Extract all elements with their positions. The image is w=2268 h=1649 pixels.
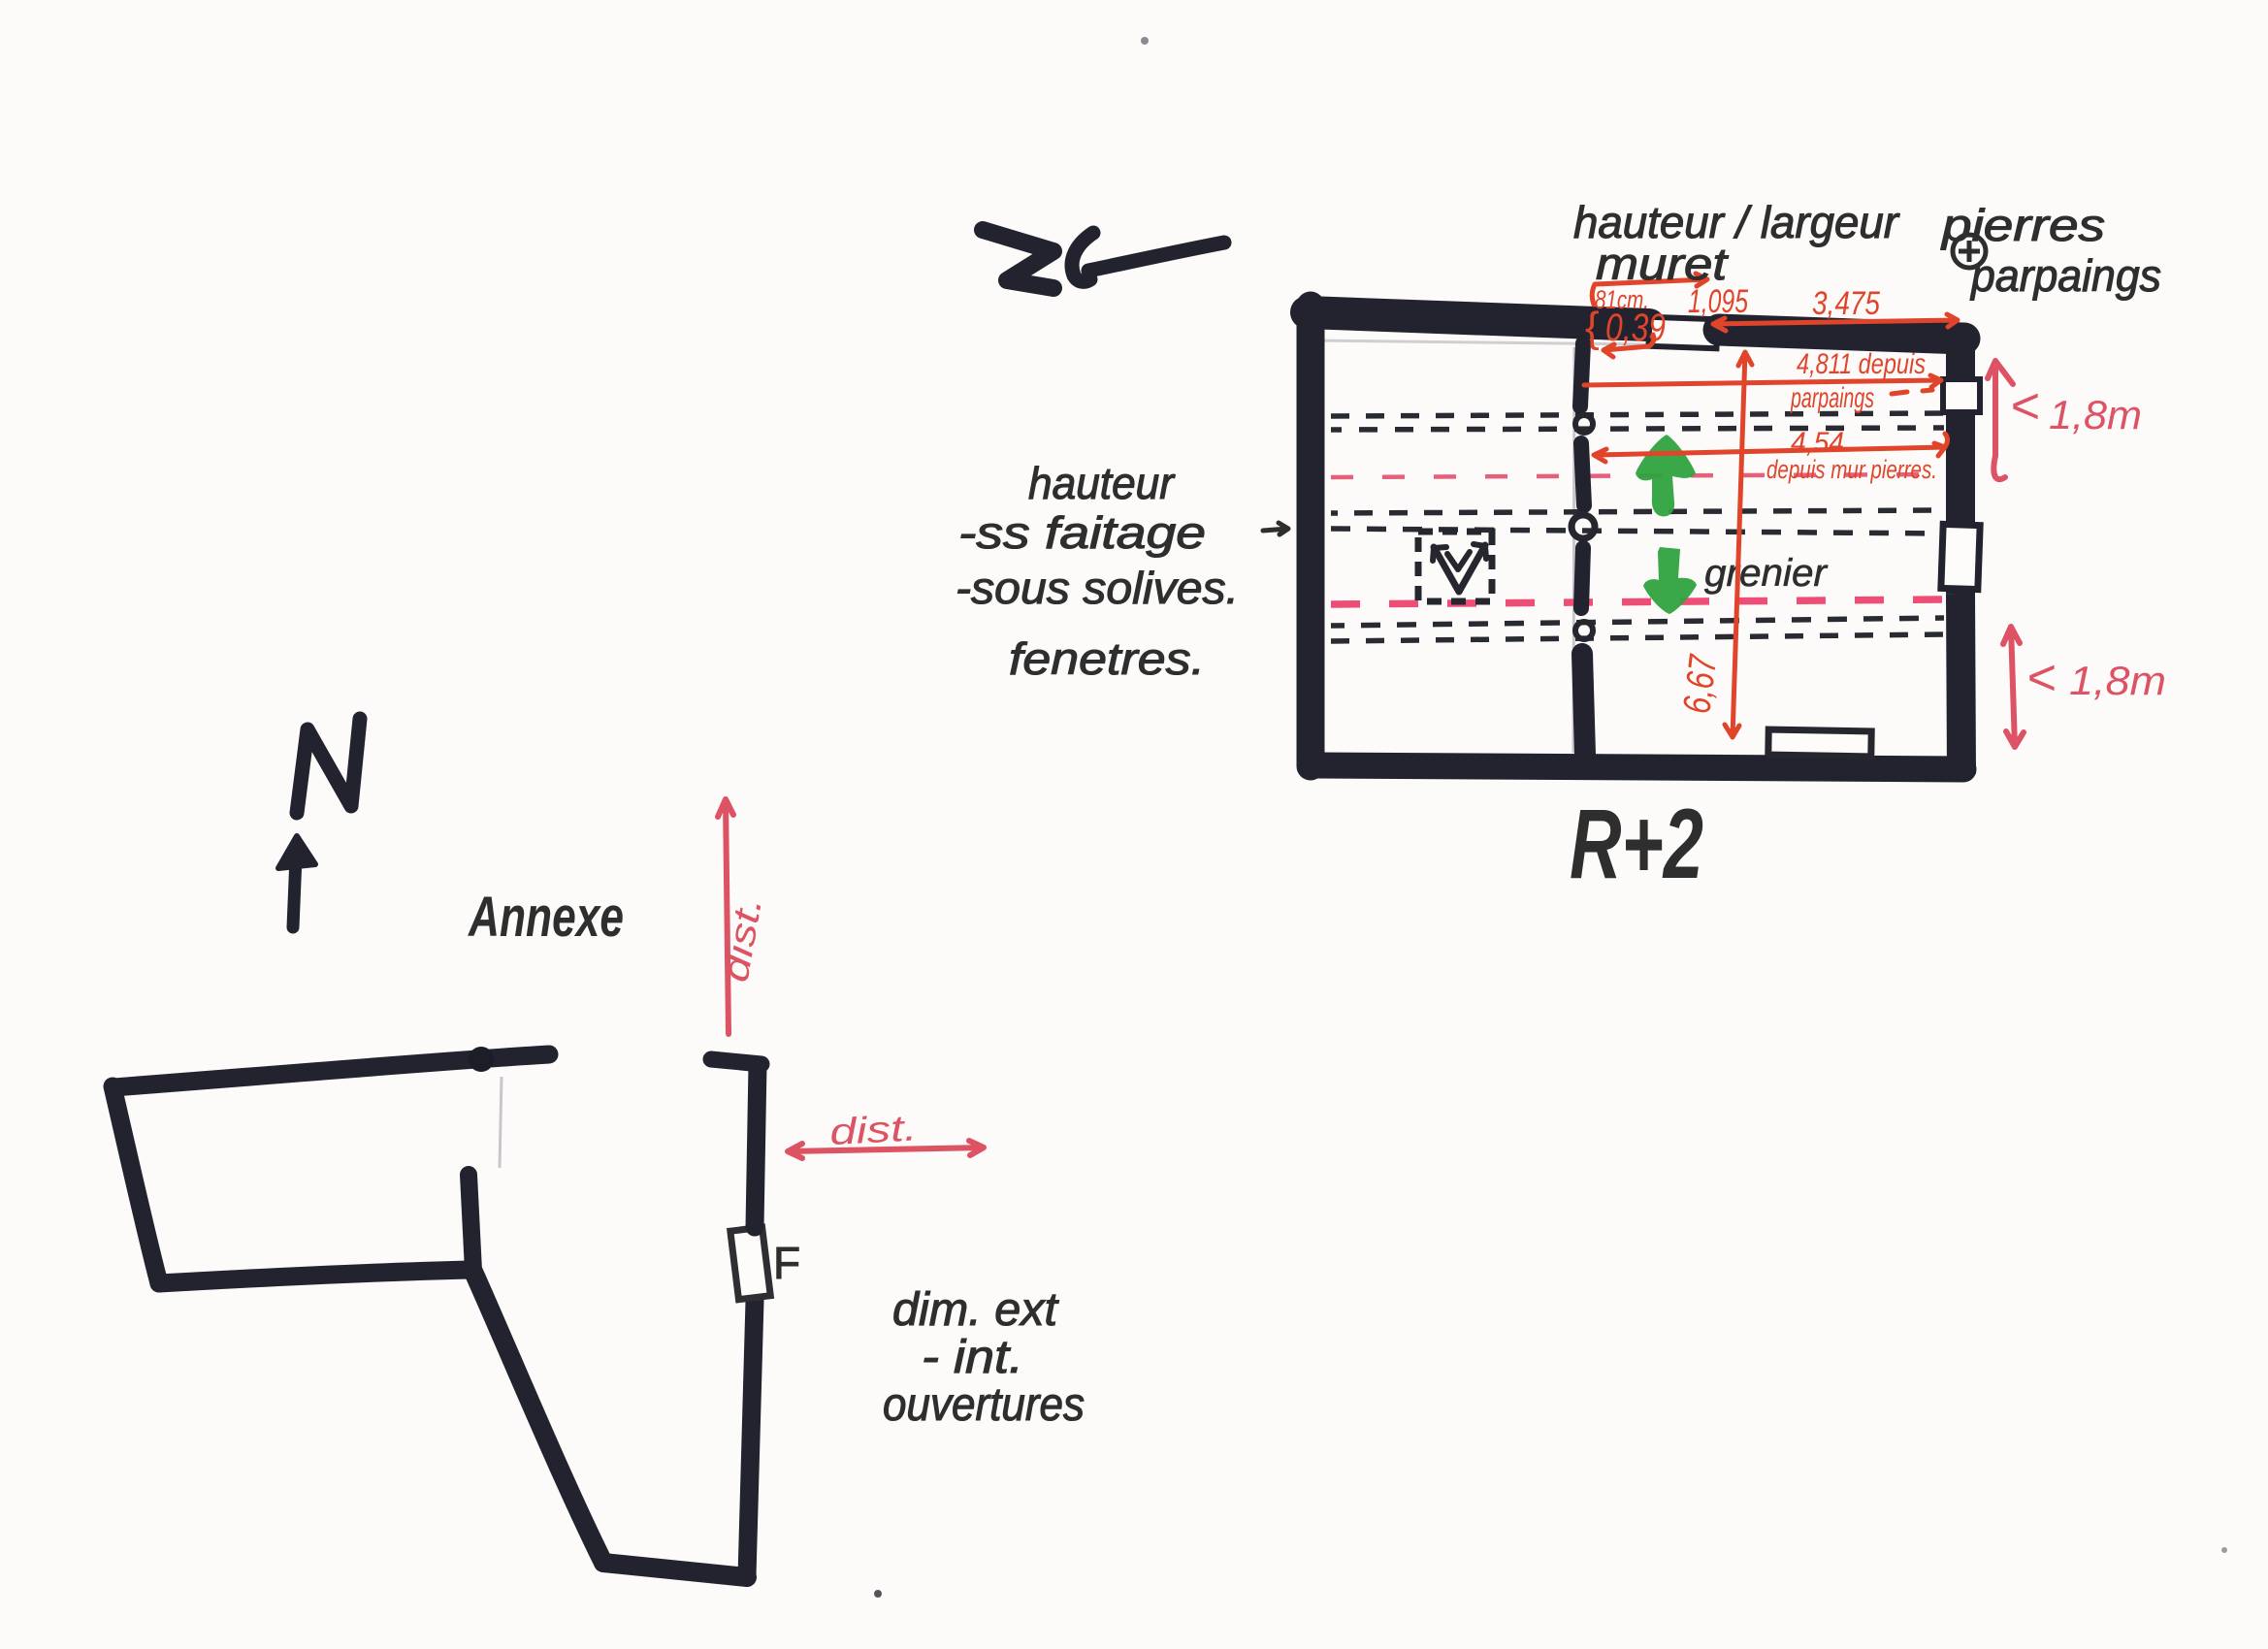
svg-text:- int.: - int. (922, 1332, 1023, 1383)
svg-text:6,67: 6,67 (1675, 652, 1725, 716)
svg-text:parpaings: parpaings (1790, 382, 1874, 414)
svg-text:R+2: R+2 (1570, 789, 1703, 899)
svg-text:4,811 depuis: 4,811 depuis (1797, 348, 1926, 380)
svg-text:depuis mur pierres.: depuis mur pierres. (1766, 455, 1937, 484)
svg-text:dim. ext: dim. ext (892, 1284, 1059, 1336)
svg-text:<: < (2010, 378, 2039, 435)
svg-text:hauteur: hauteur (1028, 458, 1176, 508)
svg-text:pierres: pierres (1940, 200, 2105, 250)
svg-text:grenier: grenier (1704, 552, 1829, 595)
svg-text:3,475: 3,475 (1812, 285, 1880, 322)
svg-text:<: < (2026, 650, 2056, 706)
svg-text:F: F (773, 1238, 800, 1288)
svg-text:Annexe: Annexe (467, 886, 624, 949)
svg-text:1,8m: 1,8m (2069, 658, 2166, 703)
svg-text:fenetres.: fenetres. (1009, 633, 1205, 684)
svg-text:dist.: dist. (828, 1108, 918, 1153)
svg-text:-sous solives.: -sous solives. (956, 563, 1239, 613)
svg-text:1,8m: 1,8m (2049, 392, 2142, 437)
svg-text:muret: muret (1596, 239, 1730, 289)
svg-text:parpaings: parpaings (1969, 250, 2161, 301)
svg-text:-ss faitage: -ss faitage (958, 507, 1206, 558)
svg-text:ouvertures: ouvertures (883, 1379, 1085, 1431)
svg-text:{: { (1585, 304, 1600, 351)
